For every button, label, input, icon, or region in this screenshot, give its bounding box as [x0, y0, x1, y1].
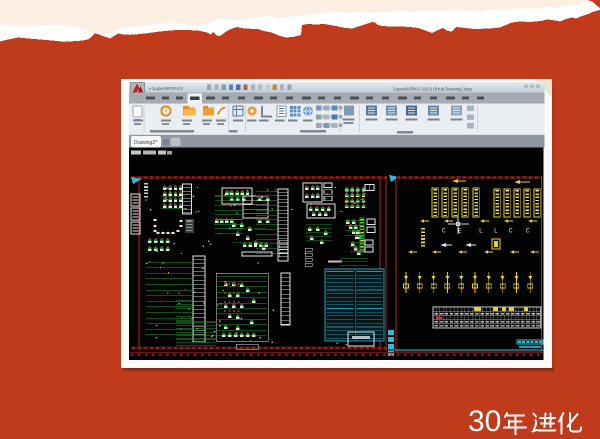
- svg-text:C: C: [526, 228, 530, 235]
- svg-text:SuperWORKS V10.0 DHub Drawing: SuperWORKS V10.0 DHub Drawing2.dwg: [393, 87, 472, 92]
- svg-text:Drawing2*: Drawing2*: [134, 140, 157, 146]
- svg-text:L: L: [479, 228, 483, 235]
- svg-text:• SuperWORKS: • SuperWORKS: [149, 86, 183, 92]
- svg-text:C: C: [442, 228, 446, 235]
- svg-text:30: 30: [468, 405, 501, 438]
- svg-text:E: E: [458, 228, 462, 235]
- svg-text:L: L: [494, 228, 498, 235]
- svg-text:C: C: [509, 228, 513, 235]
